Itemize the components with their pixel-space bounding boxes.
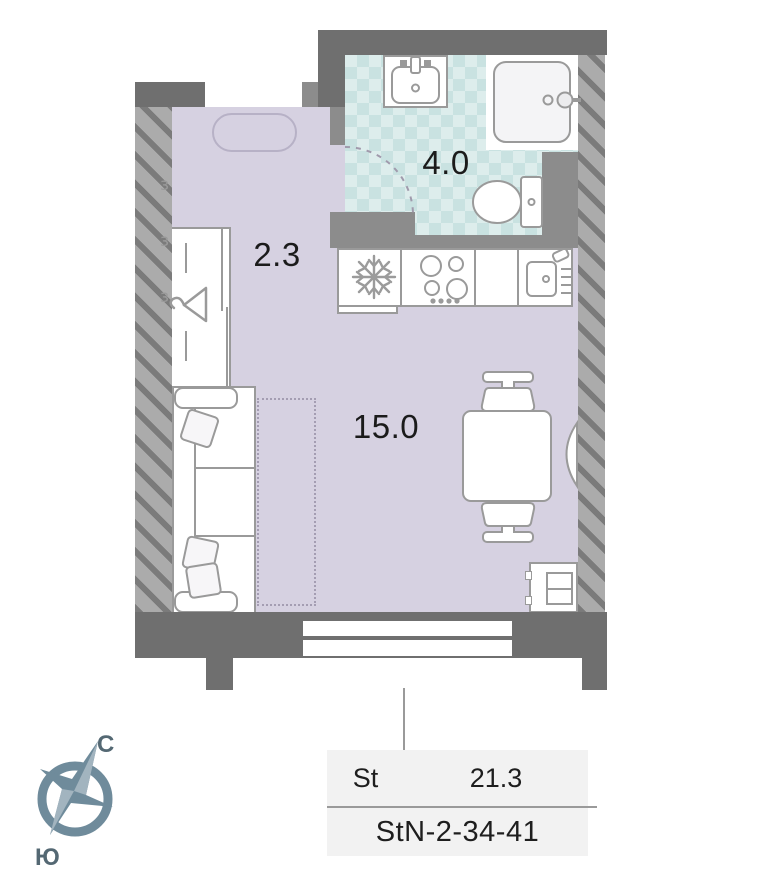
entry-wall-stub xyxy=(302,82,318,107)
legend-row-summary: St 21.3 xyxy=(327,750,588,806)
toilet-duct-wall xyxy=(542,152,578,248)
wall-top xyxy=(318,30,607,55)
pillow xyxy=(185,562,223,600)
sofa-armrest xyxy=(174,387,238,409)
kitchen-counter xyxy=(337,248,573,307)
sofa-bed-outline xyxy=(257,398,316,606)
compass-rose-icon: С Ю xyxy=(15,722,145,882)
wardrobe xyxy=(170,227,231,392)
window xyxy=(303,621,512,636)
living-room-area-label: 15.0 xyxy=(353,408,419,446)
compass-north-label: С xyxy=(97,731,114,758)
hallway-area-label: 2.3 xyxy=(253,236,300,274)
wardrobe-door-rail xyxy=(221,229,223,311)
wall-left-hatched xyxy=(135,107,172,612)
dining-table xyxy=(462,410,552,502)
cabinet xyxy=(529,562,578,613)
legend-row-unit: StN-2-34-41 xyxy=(327,808,588,856)
unit-type-label: St xyxy=(353,763,379,794)
window xyxy=(303,640,512,656)
wardrobe-rod xyxy=(185,331,187,361)
compass-south-label: Ю xyxy=(35,844,60,871)
wardrobe-rod xyxy=(185,243,187,273)
kitchen-wall xyxy=(330,235,578,248)
unit-code: StN-2-34-41 xyxy=(376,816,539,849)
wardrobe-door-rail xyxy=(226,307,228,392)
bathroom-area-label: 4.0 xyxy=(422,144,469,182)
shower-tray xyxy=(493,61,571,143)
fridge xyxy=(337,305,398,314)
wall-corner xyxy=(318,55,345,107)
bathroom-door-stub xyxy=(330,107,345,145)
wall-hall-top xyxy=(135,82,205,107)
rug-oval xyxy=(212,113,297,152)
bathroom-sink xyxy=(383,55,448,108)
wall-pier-left xyxy=(206,658,233,690)
wall-pier-right xyxy=(582,658,607,690)
total-area-value: 21.3 xyxy=(470,763,523,794)
wall-right-hatched xyxy=(578,55,605,612)
